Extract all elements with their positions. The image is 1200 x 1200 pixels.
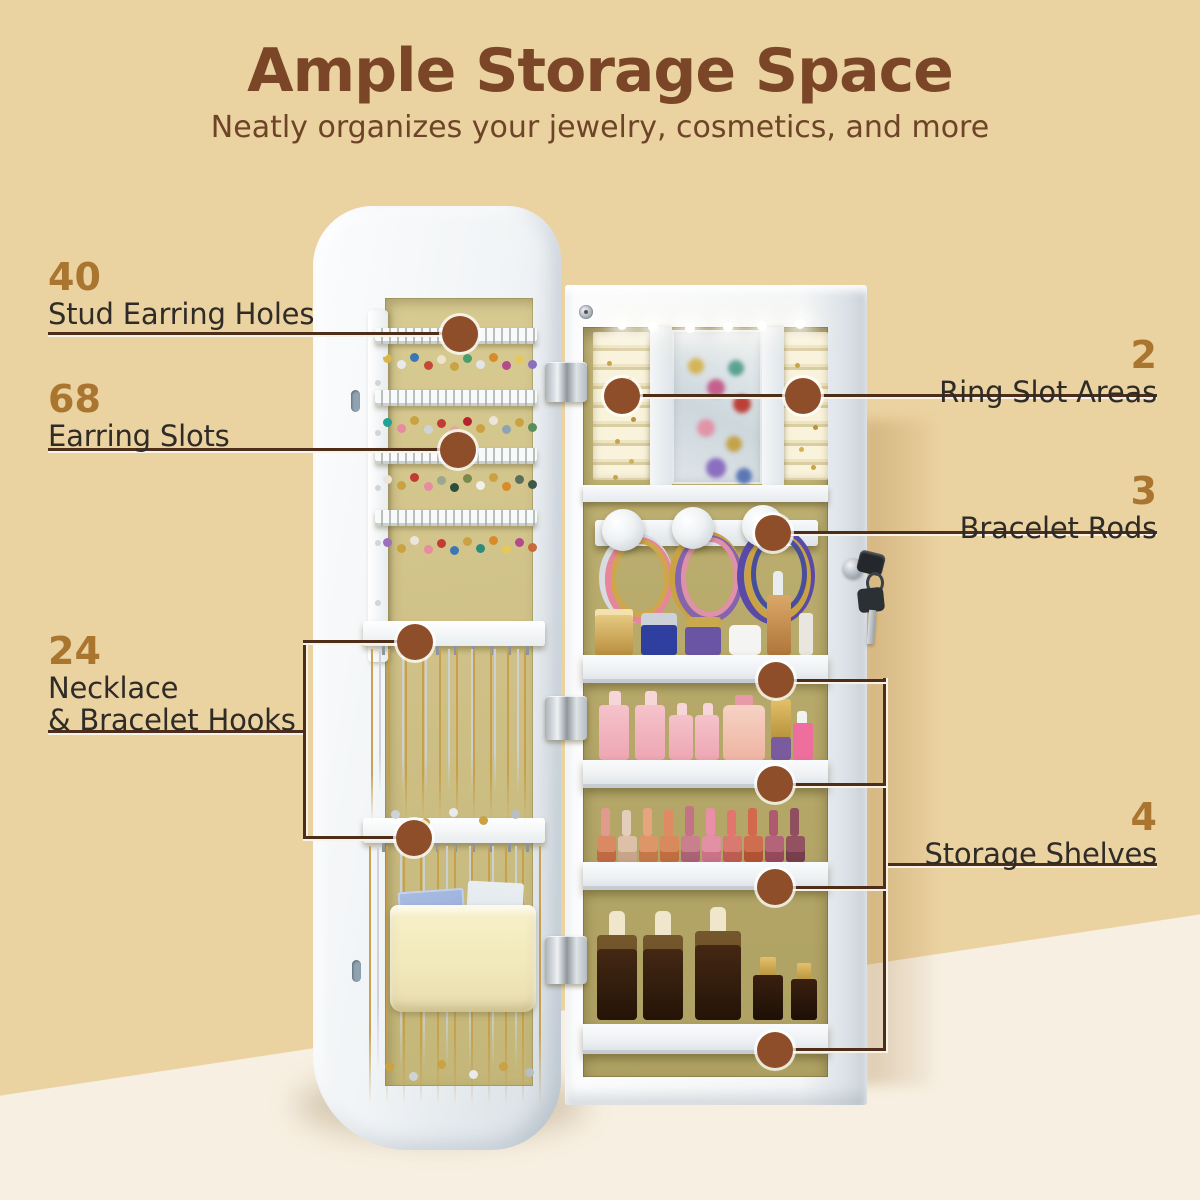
- tint-cap: [790, 808, 799, 836]
- earrings-row: [379, 530, 388, 539]
- callout-label: Earring Slots: [48, 420, 230, 452]
- callout-dot-stud-earring-holes: [442, 316, 478, 352]
- mirror-reflections: [686, 348, 694, 356]
- tint-bottle: [660, 836, 679, 862]
- magnet-catch: [352, 960, 361, 982]
- tint-cap: [643, 808, 652, 836]
- callout-dot-shelf-2: [757, 766, 793, 802]
- callout-dot-bracelet-rods: [755, 515, 791, 551]
- callout-label: Necklace: [48, 672, 296, 704]
- bangle: [681, 537, 739, 617]
- dropper-top: [710, 907, 726, 933]
- tint-cap: [685, 806, 694, 836]
- tint-bottle: [744, 836, 763, 862]
- callout-dot-shelf-1: [758, 662, 794, 698]
- mirror-frame: [650, 327, 672, 485]
- cosmetic-jar: [685, 617, 721, 655]
- cabinet-interior: [583, 327, 828, 1077]
- page-subtitle: Neatly organizes your jewelry, cosmetics…: [0, 110, 1200, 145]
- callout-dot-shelf-4: [757, 1032, 793, 1068]
- small-dark-bottle: [753, 975, 783, 1020]
- dropper-bottle: [773, 571, 783, 597]
- callout-dot-necklace-hooks-top: [397, 624, 433, 660]
- callout-dot-necklace-hooks-bottom: [396, 820, 432, 856]
- callout-dot-shelf-3: [757, 869, 793, 905]
- magnet-catch: [351, 390, 360, 412]
- leader-stud-earring-holes: [48, 332, 462, 337]
- dark-serum-bottle: [597, 935, 637, 1020]
- pink-serum-bottle: [635, 705, 665, 760]
- pink-serum-bottle: [669, 715, 693, 760]
- hinge: [545, 696, 587, 740]
- callout-number: 3: [960, 472, 1157, 512]
- tint-bottle: [681, 836, 700, 862]
- gold-lipstick: [771, 699, 791, 739]
- earrings-row: [379, 410, 388, 419]
- bracelet-rod: [672, 507, 714, 549]
- tint-cap: [601, 808, 610, 836]
- hinge: [545, 936, 587, 984]
- page-title: Ample Storage Space: [0, 36, 1200, 106]
- tint-cap: [727, 810, 736, 836]
- callout-dot-earring-slots: [440, 432, 476, 468]
- tint-cap: [748, 808, 757, 836]
- dark-serum-bottle: [695, 931, 741, 1020]
- leader-necklace-hooks-bracket: [303, 640, 306, 841]
- callout-number: 40: [48, 258, 314, 298]
- callout-ring-slot-areas: 2 Ring Slot Areas: [939, 336, 1157, 408]
- door-side-rail: [368, 310, 388, 662]
- cosmetic-jar: [729, 625, 761, 655]
- shelf-divider: [583, 485, 828, 502]
- pink-serum-bottle: [599, 705, 629, 760]
- led-light: [723, 322, 733, 332]
- callout-earring-slots: 68 Earring Slots: [48, 380, 230, 452]
- cosmetic-jar: [595, 609, 633, 655]
- nail-polish: [793, 723, 813, 760]
- hinge: [545, 362, 587, 402]
- cabinet-wall-shadow: [862, 420, 932, 1085]
- tint-cap: [622, 810, 631, 836]
- tint-bottle: [723, 836, 742, 862]
- callout-necklace-hooks: 24 Necklace & Bracelet Hooks: [48, 632, 296, 737]
- callout-label: Ring Slot Areas: [939, 376, 1157, 408]
- callout-number: 2: [939, 336, 1157, 376]
- ring-sparkles: [789, 351, 794, 356]
- callout-number: 4: [925, 798, 1157, 838]
- ring-sparkles: [601, 347, 606, 352]
- necklace-pendants: [379, 1056, 388, 1065]
- tint-bottle: [702, 836, 721, 862]
- gold-lipstick-base: [771, 737, 791, 760]
- callout-number: 68: [48, 380, 230, 420]
- dropper-top: [655, 911, 671, 937]
- product-infographic: Ample Storage Space Neatly organizes you…: [0, 0, 1200, 1200]
- callout-bracelet-rods: 3 Bracelet Rods: [960, 472, 1157, 544]
- tint-cap: [769, 810, 778, 836]
- callout-label: Stud Earring Holes: [48, 298, 314, 330]
- callout-label: Storage Shelves: [925, 838, 1157, 870]
- callout-label: & Bracelet Hooks: [48, 704, 296, 736]
- callout-number: 24: [48, 632, 296, 672]
- callout-storage-shelves: 4 Storage Shelves: [925, 798, 1157, 870]
- callout-dot-ring-right: [785, 378, 821, 414]
- tint-bottle: [786, 836, 805, 862]
- earring-rack: [375, 510, 537, 526]
- door-pocket: [390, 905, 536, 1012]
- gold-cap: [760, 957, 776, 977]
- led-light: [795, 319, 805, 329]
- tint-bottle: [618, 836, 637, 862]
- small-bottle: [799, 613, 813, 655]
- dark-serum-bottle: [643, 935, 683, 1020]
- tint-bottle: [639, 836, 658, 862]
- mirror-frame: [762, 327, 784, 485]
- necklace-chains: [379, 649, 535, 794]
- cosmetic-jar: [641, 613, 677, 655]
- leader-storage-shelves-bracket: [883, 678, 886, 1053]
- necklace-pendants: [383, 806, 392, 815]
- callout-stud-earring-holes: 40 Stud Earring Holes: [48, 258, 314, 330]
- dropper-top: [609, 911, 625, 937]
- interior-mirror: [672, 330, 762, 484]
- tint-bottle: [765, 836, 784, 862]
- bracelet-rod: [602, 509, 644, 551]
- tint-cap: [664, 810, 673, 836]
- cabinet-door: [313, 206, 561, 1150]
- earrings-row: [379, 348, 388, 357]
- earring-rack: [375, 390, 537, 406]
- callout-dot-ring-left: [604, 378, 640, 414]
- small-dark-bottle: [791, 979, 817, 1020]
- pink-serum-bottle: [695, 715, 719, 760]
- tint-cap: [706, 808, 715, 836]
- led-light: [648, 322, 658, 332]
- led-light: [617, 320, 627, 330]
- dropper-bottle: [767, 595, 791, 655]
- led-light: [757, 321, 767, 331]
- earrings-row: [379, 468, 388, 477]
- keyhole-icon: [579, 305, 593, 319]
- perfume-bottle: [723, 705, 765, 760]
- callout-label: Bracelet Rods: [960, 512, 1157, 544]
- tint-bottle: [597, 836, 616, 862]
- led-light: [685, 323, 695, 333]
